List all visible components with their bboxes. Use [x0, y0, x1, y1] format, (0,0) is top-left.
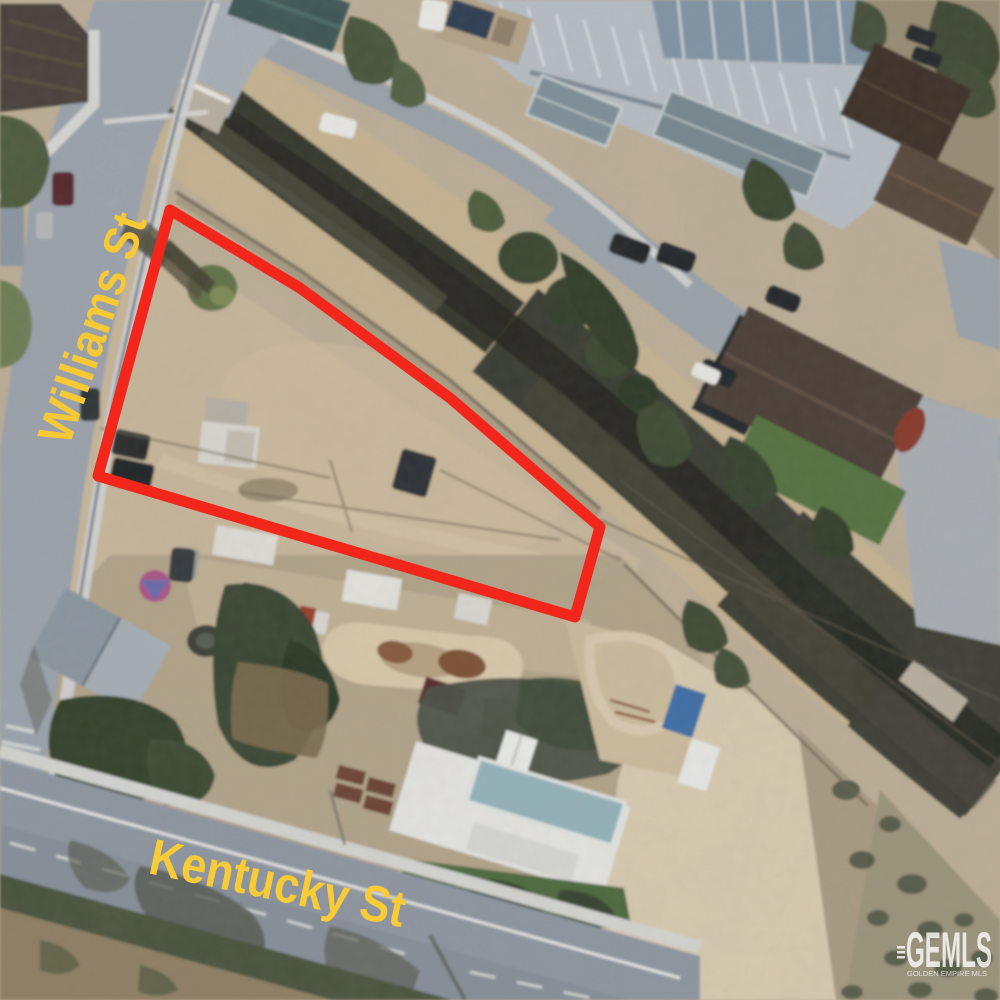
svg-text:GOLDEN EMPIRE MLS: GOLDEN EMPIRE MLS — [907, 971, 987, 978]
svg-text:GEMLS: GEMLS — [906, 922, 992, 978]
